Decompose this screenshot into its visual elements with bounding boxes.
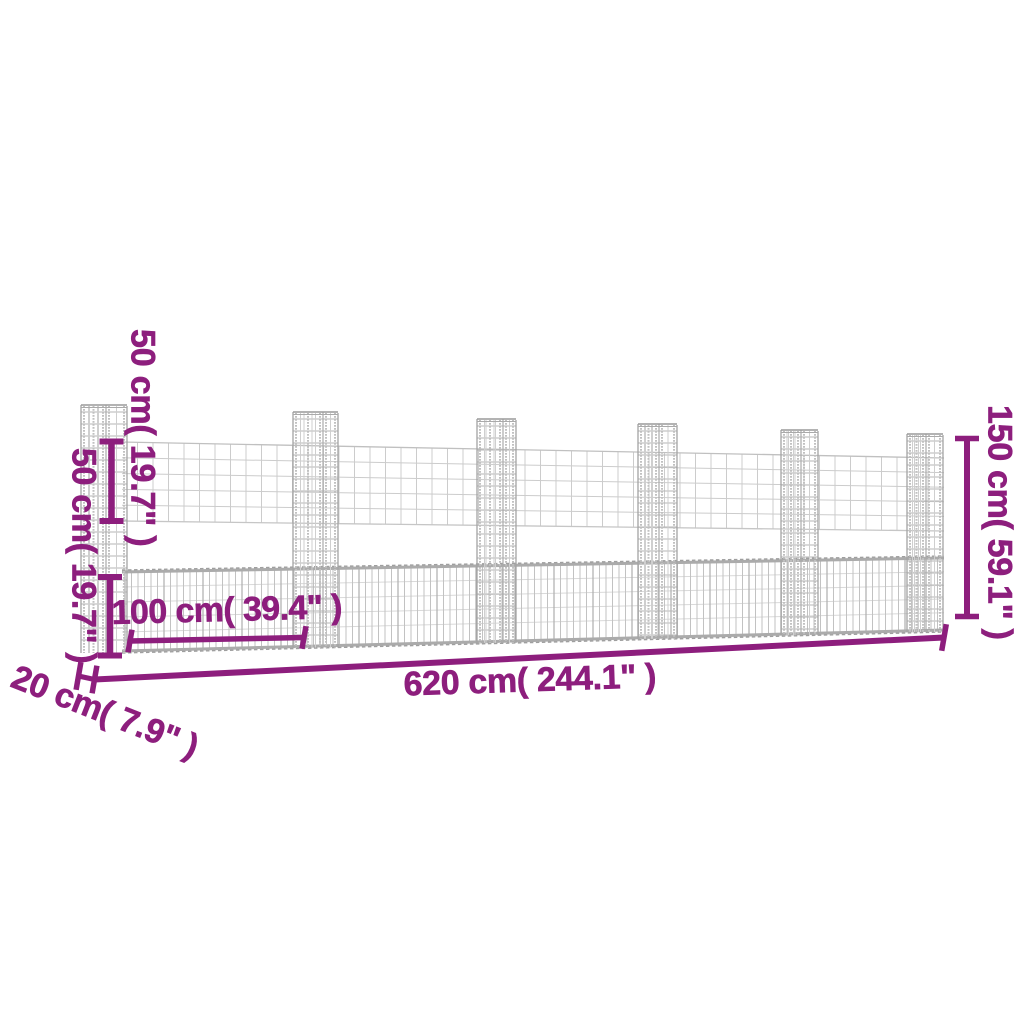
svg-text:50 cm( 19.7" ): 50 cm( 19.7" ) — [65, 448, 103, 663]
svg-text:100 cm( 39.4" ): 100 cm( 39.4" ) — [111, 588, 342, 632]
svg-text:150 cm( 59.1" ): 150 cm( 59.1" ) — [981, 405, 1019, 640]
svg-text:50 cm( 19.7" ): 50 cm( 19.7" ) — [124, 329, 162, 546]
